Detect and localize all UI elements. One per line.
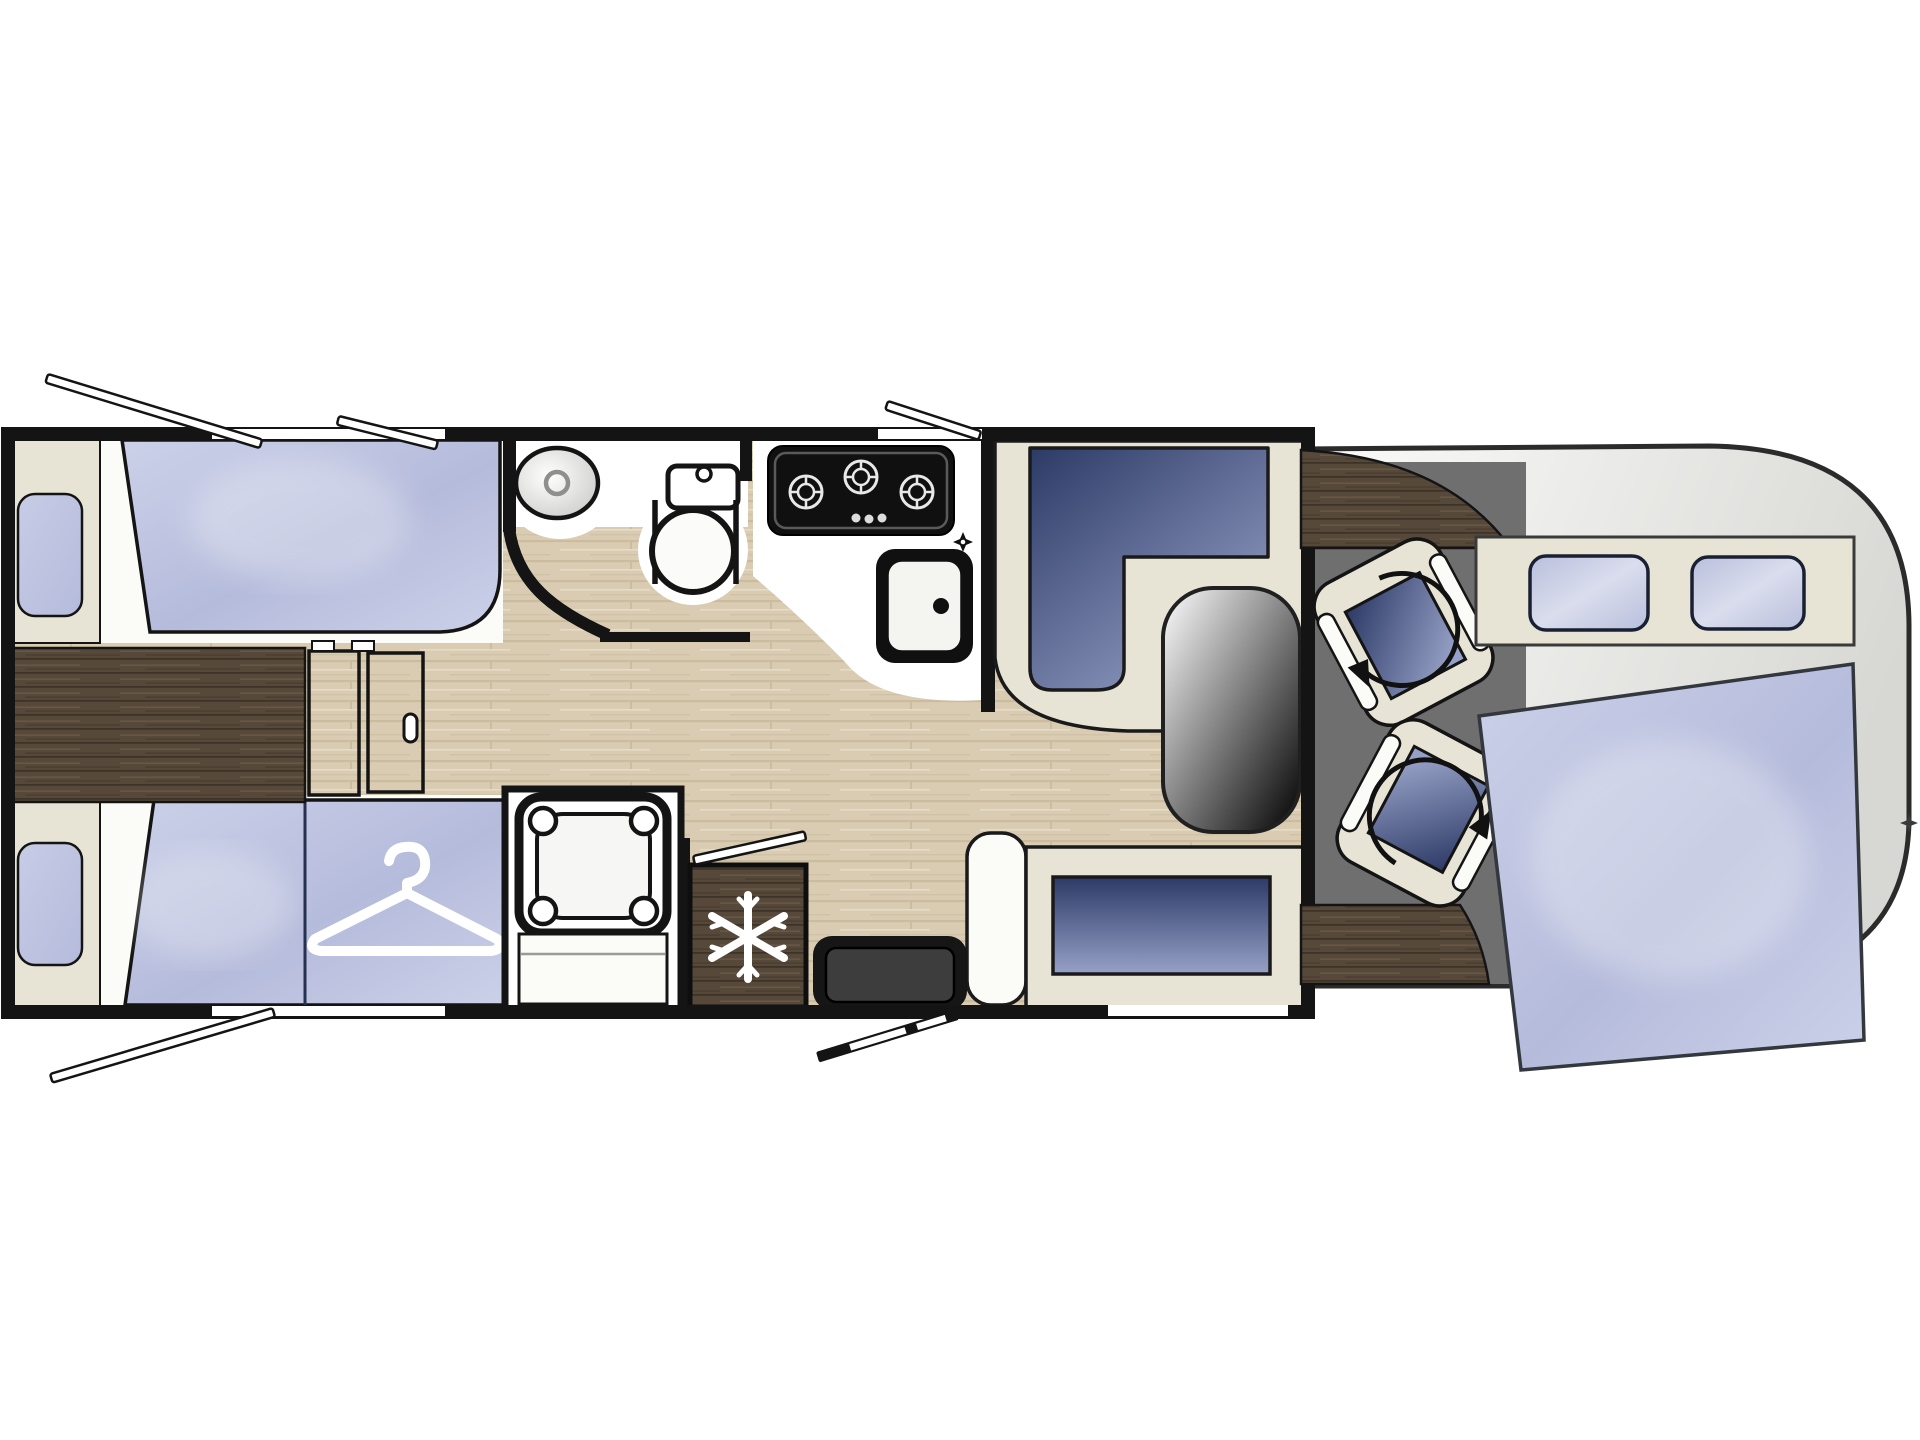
toilet-bowl (652, 510, 734, 592)
shower-bench (519, 934, 667, 1004)
window-sill-bottom-2 (1108, 1005, 1288, 1016)
sink-drain-handle (933, 598, 949, 614)
drop-down-bed (1476, 537, 1864, 1070)
round-basin (516, 448, 598, 518)
pillow-top (18, 494, 82, 616)
pillow-bottom (18, 843, 82, 965)
sliding-door-handle (404, 714, 417, 742)
center-chest (9, 648, 305, 802)
three-burner-hob (768, 446, 954, 535)
door-track-tab-1 (312, 641, 334, 651)
galley-wall (981, 434, 995, 712)
oval-pedestal-table (1163, 588, 1300, 832)
fridge-freezer (690, 865, 806, 1007)
sliding-door-panel-1 (309, 651, 359, 795)
entry-pillar (967, 833, 1026, 1005)
open-window-indicator-4 (50, 1008, 275, 1083)
headboard-window-1 (1530, 556, 1648, 630)
motorhome-floorplan (0, 0, 1920, 1440)
dashboard-console-bottom (1301, 905, 1489, 984)
kitchen-sink (876, 532, 973, 663)
washroom-wall-right (740, 439, 752, 481)
floorplan-canvas (0, 0, 1920, 1440)
door-track-tab-2 (352, 641, 374, 651)
shower-cubicle (505, 789, 681, 1009)
headboard-window-2 (1692, 557, 1804, 629)
side-bench-cushion (1053, 877, 1270, 974)
entrance-step (813, 936, 967, 1010)
